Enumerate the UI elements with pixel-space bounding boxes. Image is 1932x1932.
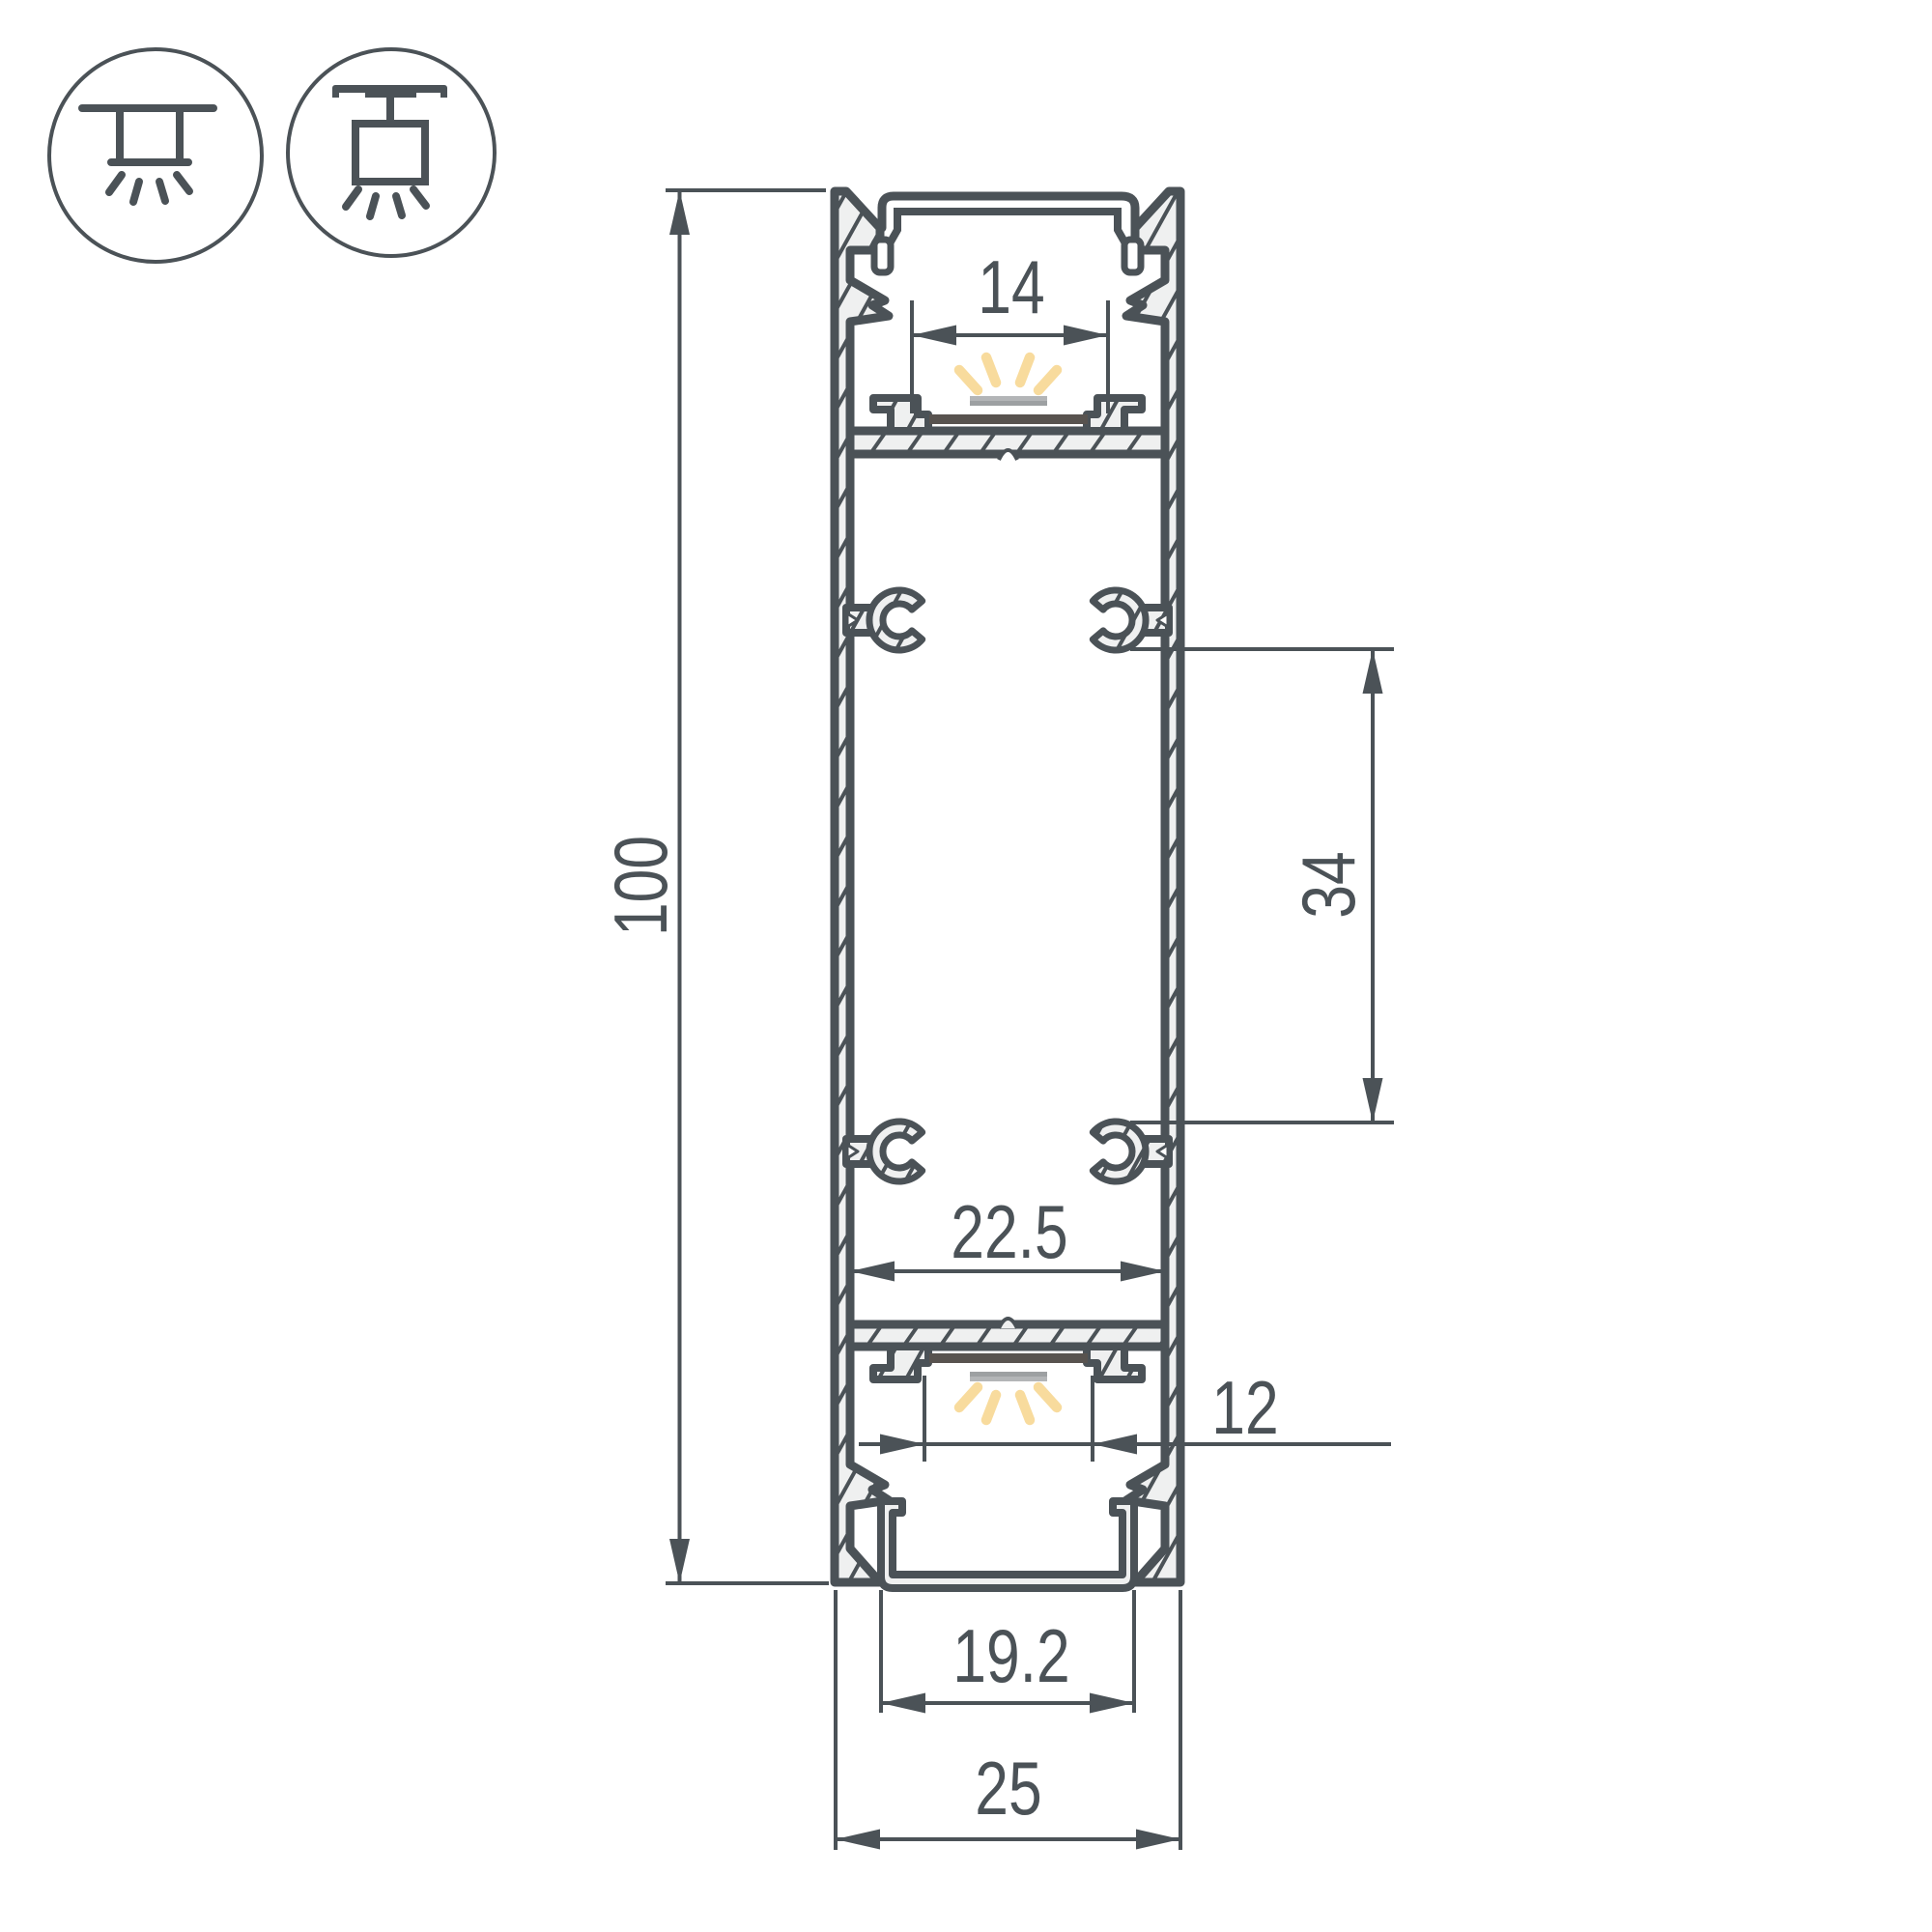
svg-text:14: 14 [978,244,1044,328]
svg-text:12: 12 [1211,1365,1278,1449]
svg-text:25: 25 [975,1746,1041,1830]
svg-text:100: 100 [598,836,682,936]
svg-text:22.5: 22.5 [951,1189,1067,1273]
svg-text:19.2: 19.2 [952,1613,1069,1697]
svg-text:34: 34 [1286,851,1370,918]
